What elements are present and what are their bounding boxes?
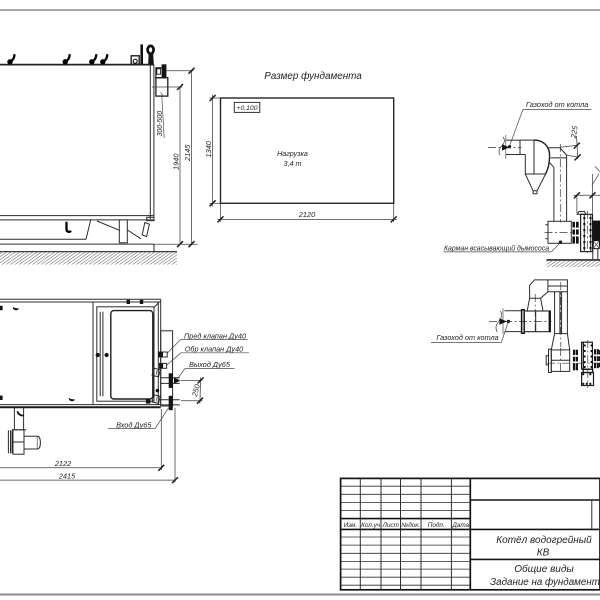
svg-text:Пред клапан Ду40: Пред клапан Ду40 bbox=[184, 331, 246, 340]
svg-text:№док.: №док. bbox=[401, 521, 420, 529]
svg-text:225: 225 bbox=[569, 124, 580, 139]
svg-text:Обр клапан Ду40: Обр клапан Ду40 bbox=[185, 344, 244, 353]
svg-text:2145: 2145 bbox=[183, 144, 192, 162]
svg-text:Нагрузка: Нагрузка bbox=[277, 149, 308, 158]
svg-text:КВ: КВ bbox=[537, 548, 550, 559]
svg-text:Лист: Лист bbox=[381, 522, 399, 529]
svg-text:2122: 2122 bbox=[54, 459, 71, 468]
svg-text:+0,100: +0,100 bbox=[237, 105, 258, 112]
svg-text:Кол.уч: Кол.уч bbox=[361, 522, 381, 529]
svg-text:Выход Ду65: Выход Ду65 bbox=[189, 360, 231, 369]
svg-text:Размер фундамента: Размер фундамента bbox=[264, 71, 362, 82]
svg-text:Газоход от котла: Газоход от котла bbox=[436, 333, 498, 342]
svg-text:2415: 2415 bbox=[58, 471, 76, 480]
svg-text:Вход Ду65: Вход Ду65 bbox=[116, 420, 152, 429]
svg-text:Подп.: Подп. bbox=[428, 521, 445, 529]
svg-text:Карман всасывающий дымососа: Карман всасывающий дымососа bbox=[444, 244, 549, 252]
svg-text:Общие виды: Общие виды bbox=[514, 563, 574, 575]
svg-text:Газоход от котла: Газоход от котла bbox=[526, 100, 588, 109]
svg-text:2120: 2120 bbox=[298, 210, 316, 219]
svg-text:Задание на фундамент: Задание на фундамент bbox=[490, 577, 600, 588]
svg-text:Дата: Дата bbox=[451, 522, 469, 529]
svg-text:300-500: 300-500 bbox=[157, 111, 164, 137]
svg-text:1340: 1340 bbox=[204, 140, 213, 157]
svg-text:1940: 1940 bbox=[171, 153, 180, 170]
svg-text:3,4 т: 3,4 т bbox=[284, 159, 302, 168]
svg-text:Котёл водогрейный: Котёл водогрейный bbox=[496, 535, 592, 546]
svg-text:Изм.: Изм. bbox=[344, 522, 358, 529]
